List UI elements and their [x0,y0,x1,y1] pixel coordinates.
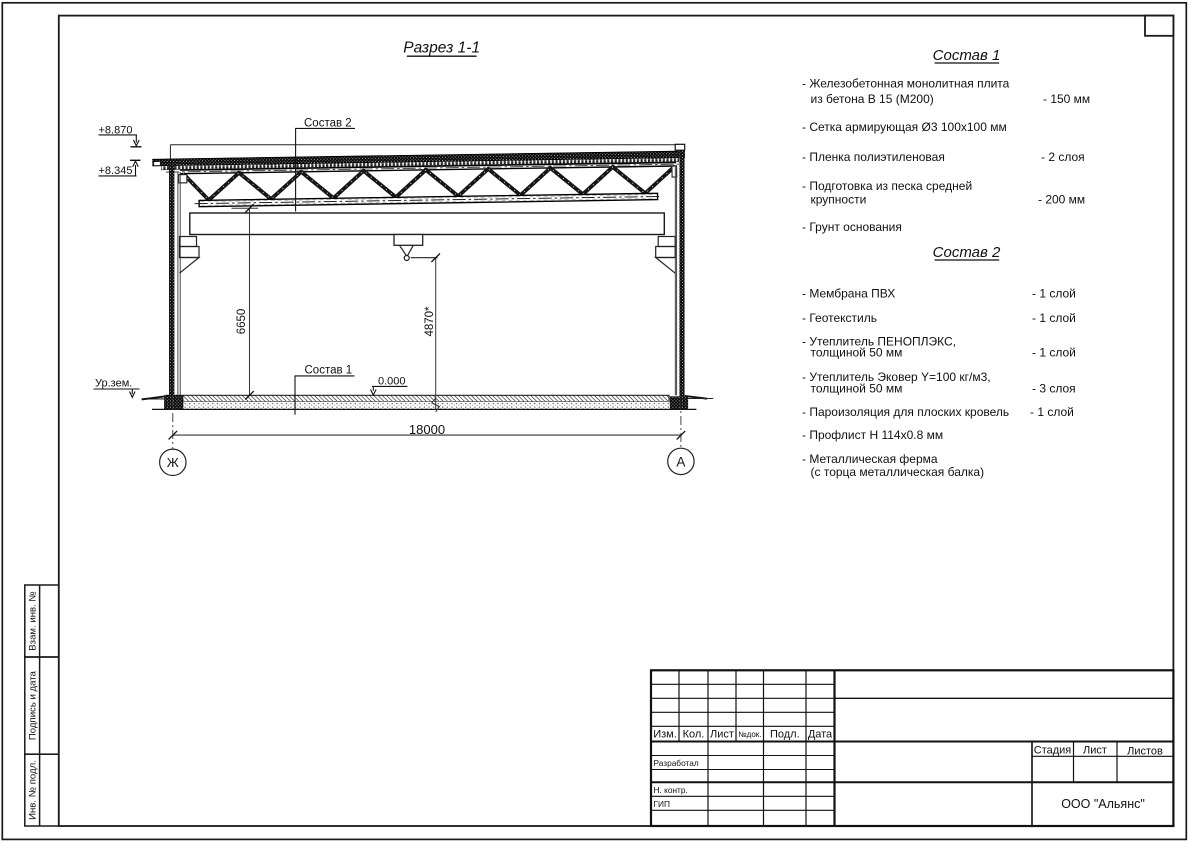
svg-text:- Подготовка из песка средней: - Подготовка из песка средней [802,179,972,193]
svg-text:ООО "Альянс": ООО "Альянс" [1061,797,1145,811]
svg-text:- Геотекстиль: - Геотекстиль [802,311,877,325]
svg-text:- Железобетонная монолитная п: - Железобетонная монолитная плита [802,77,1010,91]
svg-text:толщиной 50 мм: толщиной 50 мм [811,346,903,360]
svg-text:Состав 1: Состав 1 [305,365,353,377]
svg-text:- Металлическая ферма: - Металлическая ферма [802,452,938,466]
svg-text:№док.: №док. [738,730,761,739]
svg-text:Ж: Ж [167,455,179,470]
svg-text:Листов: Листов [1127,746,1163,758]
svg-text:из бетона В 15 (М200): из бетона В 15 (М200) [811,92,934,106]
svg-text:4870*: 4870* [424,306,436,337]
svg-text:- Пароизоляция для плоских кро: - Пароизоляция для плоских кровель [802,405,1009,419]
svg-text:Ур.зем.: Ур.зем. [95,378,132,390]
svg-text:Дата: Дата [808,729,833,741]
svg-text:- Мембрана ПВХ: - Мембрана ПВХ [802,287,895,301]
svg-text:Состав 2: Состав 2 [933,244,1001,261]
svg-text:- 2 слоя: - 2 слоя [1041,150,1085,164]
svg-text:Стадия: Стадия [1034,745,1072,757]
svg-text:крупности: крупности [811,193,867,207]
svg-text:Изм.: Изм. [653,729,677,741]
svg-text:- Профлист Н 114х0.8 мм: - Профлист Н 114х0.8 мм [802,428,943,442]
svg-text:Взам. инв. №: Взам. инв. № [28,591,39,650]
svg-text:- 1 слой: - 1 слой [1032,346,1076,360]
svg-text:Н. контр.: Н. контр. [654,785,688,795]
svg-text:18000: 18000 [409,422,445,437]
svg-text:- 1 слой: - 1 слой [1032,311,1076,325]
svg-text:(с торца металлическая балка): (с торца металлическая балка) [811,465,985,479]
svg-text:Разработал: Разработал [654,758,699,768]
svg-text:0.000: 0.000 [378,376,406,388]
svg-text:- Сетка армирующая Ø3 100х100: - Сетка армирующая Ø3 100х100 мм [802,120,1007,134]
svg-text:Разрез 1-1: Разрез 1-1 [403,40,480,57]
svg-text:+8.345: +8.345 [99,165,133,177]
svg-text:Состав 2: Состав 2 [304,118,352,130]
svg-text:Подл.: Подл. [770,729,800,741]
svg-text:Кол.: Кол. [683,729,705,741]
svg-text:- 1 слой: - 1 слой [1030,405,1074,419]
svg-text:Инв. № подл.: Инв. № подл. [28,760,39,820]
svg-text:- 200 мм: - 200 мм [1038,193,1085,207]
svg-text:А: А [676,454,685,469]
svg-text:толщиной 50 мм: толщиной 50 мм [811,381,903,395]
svg-text:- Пленка полиэтиленовая: - Пленка полиэтиленовая [802,150,945,164]
svg-text:ГИП: ГИП [654,799,670,809]
svg-text:- 3 слоя: - 3 слоя [1032,381,1076,395]
svg-text:- 1 слой: - 1 слой [1032,287,1076,301]
svg-text:Подпись и дата: Подпись и дата [28,670,39,740]
svg-text:Лист: Лист [1083,745,1107,757]
svg-text:Состав 1: Состав 1 [933,47,1001,64]
svg-text:- 150 мм: - 150 мм [1043,92,1090,106]
svg-text:Лист: Лист [710,729,734,741]
svg-text:6650: 6650 [236,309,248,335]
svg-text:- Грунт основания: - Грунт основания [802,220,902,234]
